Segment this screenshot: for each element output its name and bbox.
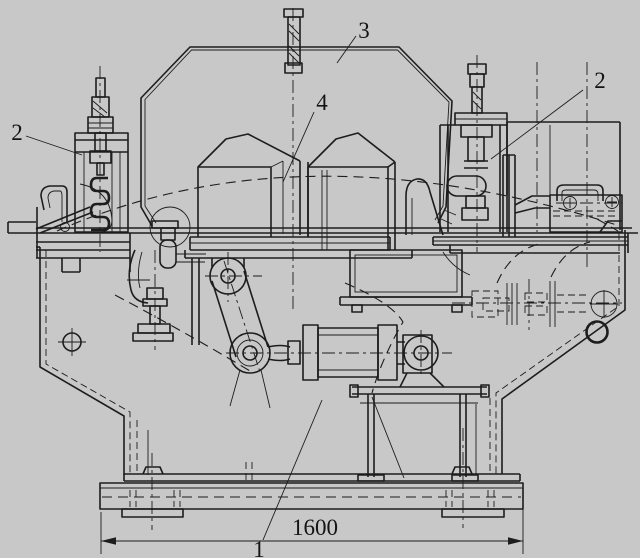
left-hook-lever: [36, 186, 130, 272]
width-dimension: 1600: [101, 490, 523, 554]
dimension-arrow-right: [508, 537, 523, 545]
callout-4: 4: [316, 90, 328, 115]
under-table-mechanism: [127, 250, 472, 345]
machine-assembly-drawing: 1600 2 3 4 2 1: [0, 0, 640, 558]
dimension-arrow-left: [101, 537, 116, 545]
right-clamp-assembly: [440, 64, 515, 237]
right-panel: [507, 122, 622, 232]
gearbox-housing: [350, 250, 462, 297]
left-clamp-assembly: [75, 78, 128, 232]
hydraulic-cylinder: [303, 325, 444, 387]
clamp-handle: [557, 185, 603, 201]
callout-1: 1: [253, 537, 265, 558]
hidden-gear-train: [472, 281, 590, 327]
machine-frame: [36, 230, 625, 475]
callout-3: 3: [358, 18, 370, 43]
callout-2-right: 2: [594, 68, 606, 93]
top-bolt: [284, 9, 303, 73]
hood-cover: [141, 47, 456, 226]
callout-2-left: 2: [11, 120, 23, 145]
linkage-arm: [210, 258, 300, 408]
centerlines: [58, 8, 622, 530]
table-platform: [8, 222, 638, 258]
drawing-canvas: 1600 2 3 4 2 1: [0, 0, 640, 558]
dimension-text: 1600: [292, 515, 338, 540]
